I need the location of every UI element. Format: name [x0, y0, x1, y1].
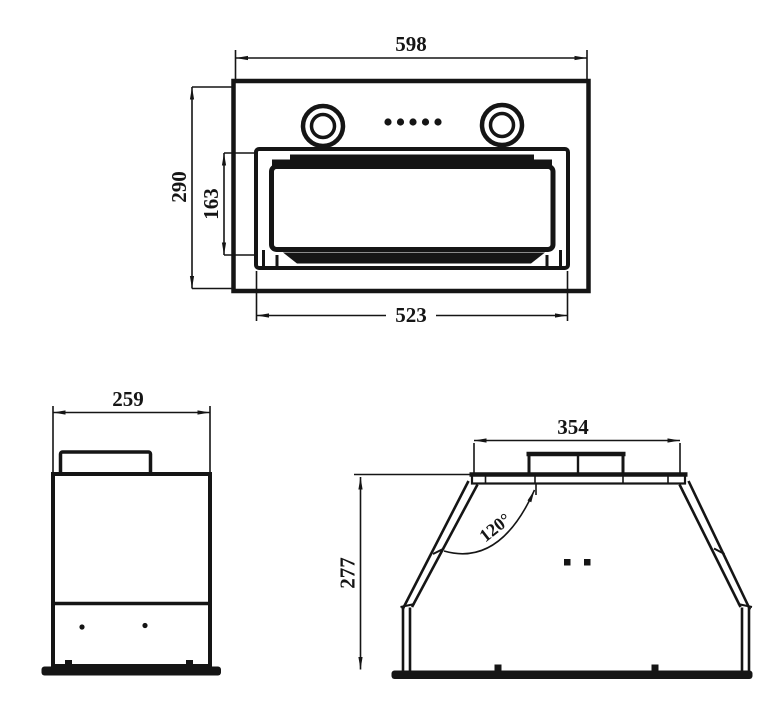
overall-width-label: 598 [395, 32, 427, 56]
rear-view: 354 277 120° [336, 415, 753, 679]
dim-overall-height: 290 [167, 87, 232, 289]
technical-drawing: 598 290 163 523 [0, 0, 767, 703]
panel-bottom-bar [283, 253, 545, 264]
drawing-canvas: 598 290 163 523 [0, 0, 767, 703]
side-view: 259 [42, 387, 222, 676]
rear-mount-dots [564, 559, 591, 566]
glass-panel [272, 167, 554, 250]
side-body-outline [53, 474, 210, 666]
body-height-label: 277 [336, 557, 360, 589]
slope-angle-label: 120° [475, 509, 514, 546]
panel-width-label: 523 [395, 303, 427, 327]
front-view: 598 290 163 523 [167, 32, 589, 328]
grease-filter-panel [256, 149, 568, 268]
overall-height-label: 290 [167, 171, 191, 203]
rear-base-plate [392, 665, 753, 680]
control-knob-left [303, 106, 343, 146]
rear-right-slope [680, 481, 753, 671]
panel-height-label: 163 [199, 188, 223, 220]
rear-top-band [470, 474, 688, 484]
control-knob-right [482, 105, 522, 145]
depth-label: 259 [112, 387, 144, 411]
rear-left-slope [401, 481, 478, 671]
top-width-label: 354 [557, 415, 589, 439]
dim-overall-width: 598 [236, 32, 588, 79]
